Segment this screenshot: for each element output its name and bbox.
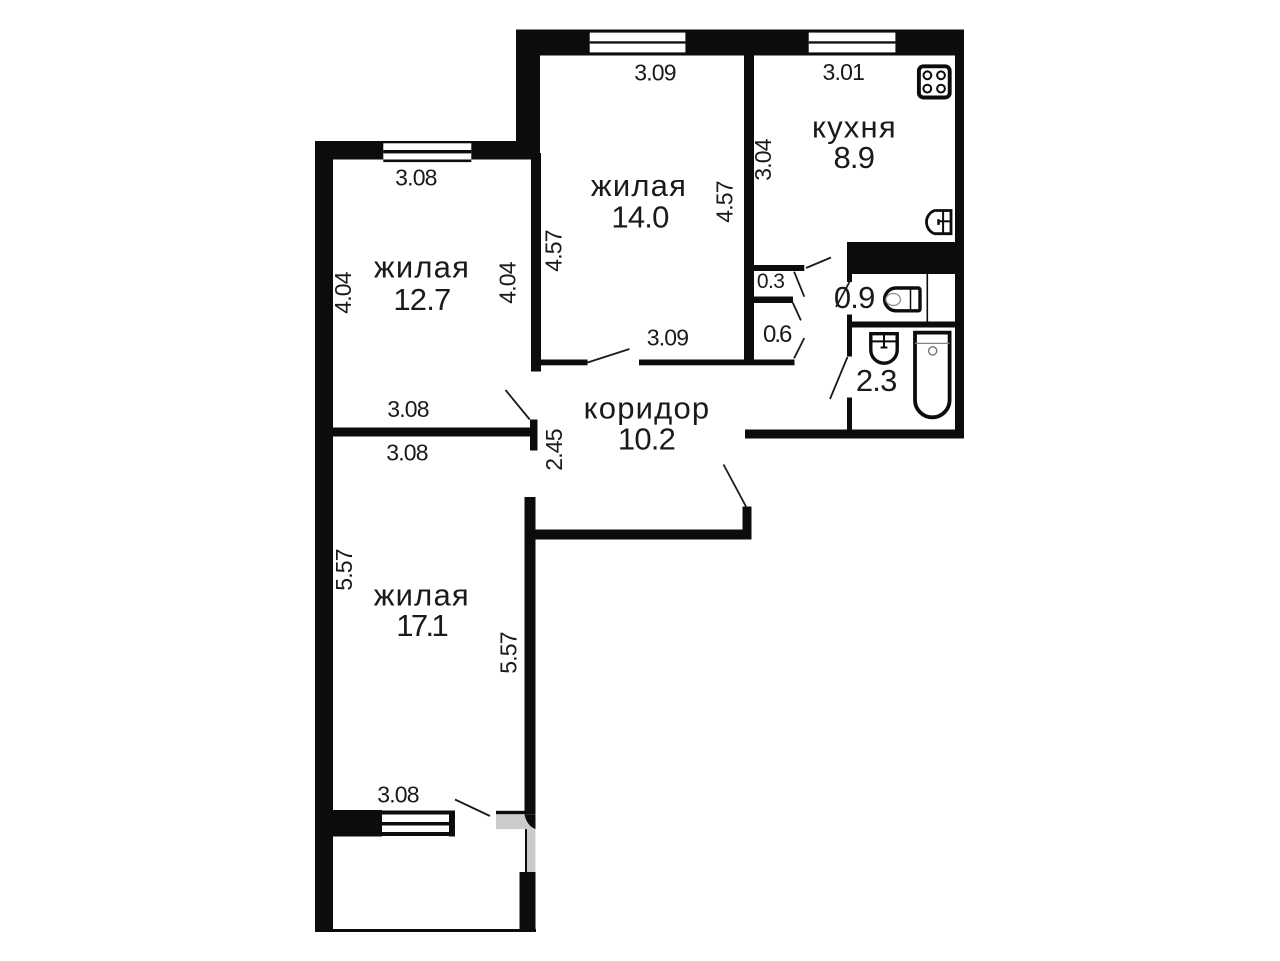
svg-text:3.08: 3.08 <box>387 396 429 422</box>
svg-text:5.57: 5.57 <box>496 632 522 674</box>
svg-text:17.1: 17.1 <box>396 608 447 643</box>
svg-text:0.9: 0.9 <box>834 280 875 315</box>
svg-text:3.08: 3.08 <box>377 782 419 808</box>
svg-text:12.7: 12.7 <box>393 282 450 317</box>
svg-text:0.3: 0.3 <box>757 270 785 293</box>
svg-text:жилая: жилая <box>591 168 687 203</box>
svg-text:4.57: 4.57 <box>711 181 737 223</box>
svg-text:2.45: 2.45 <box>541 429 567 471</box>
svg-text:0.6: 0.6 <box>763 321 792 348</box>
svg-text:3.04: 3.04 <box>750 138 776 181</box>
svg-text:коридор: коридор <box>584 391 711 426</box>
svg-text:жилая: жилая <box>374 250 470 285</box>
svg-text:3.08: 3.08 <box>386 440 428 466</box>
svg-text:4.04: 4.04 <box>330 271 356 314</box>
svg-text:10.2: 10.2 <box>618 422 675 457</box>
svg-text:14.0: 14.0 <box>611 200 669 235</box>
svg-text:3.09: 3.09 <box>634 60 676 86</box>
svg-text:4.04: 4.04 <box>494 261 520 304</box>
svg-text:3.01: 3.01 <box>823 59 865 85</box>
svg-text:3.09: 3.09 <box>647 325 689 351</box>
svg-text:3.08: 3.08 <box>395 165 437 191</box>
svg-text:8.9: 8.9 <box>833 140 874 175</box>
svg-text:2.3: 2.3 <box>856 363 897 398</box>
svg-text:4.57: 4.57 <box>541 230 567 272</box>
svg-text:5.57: 5.57 <box>331 549 357 591</box>
